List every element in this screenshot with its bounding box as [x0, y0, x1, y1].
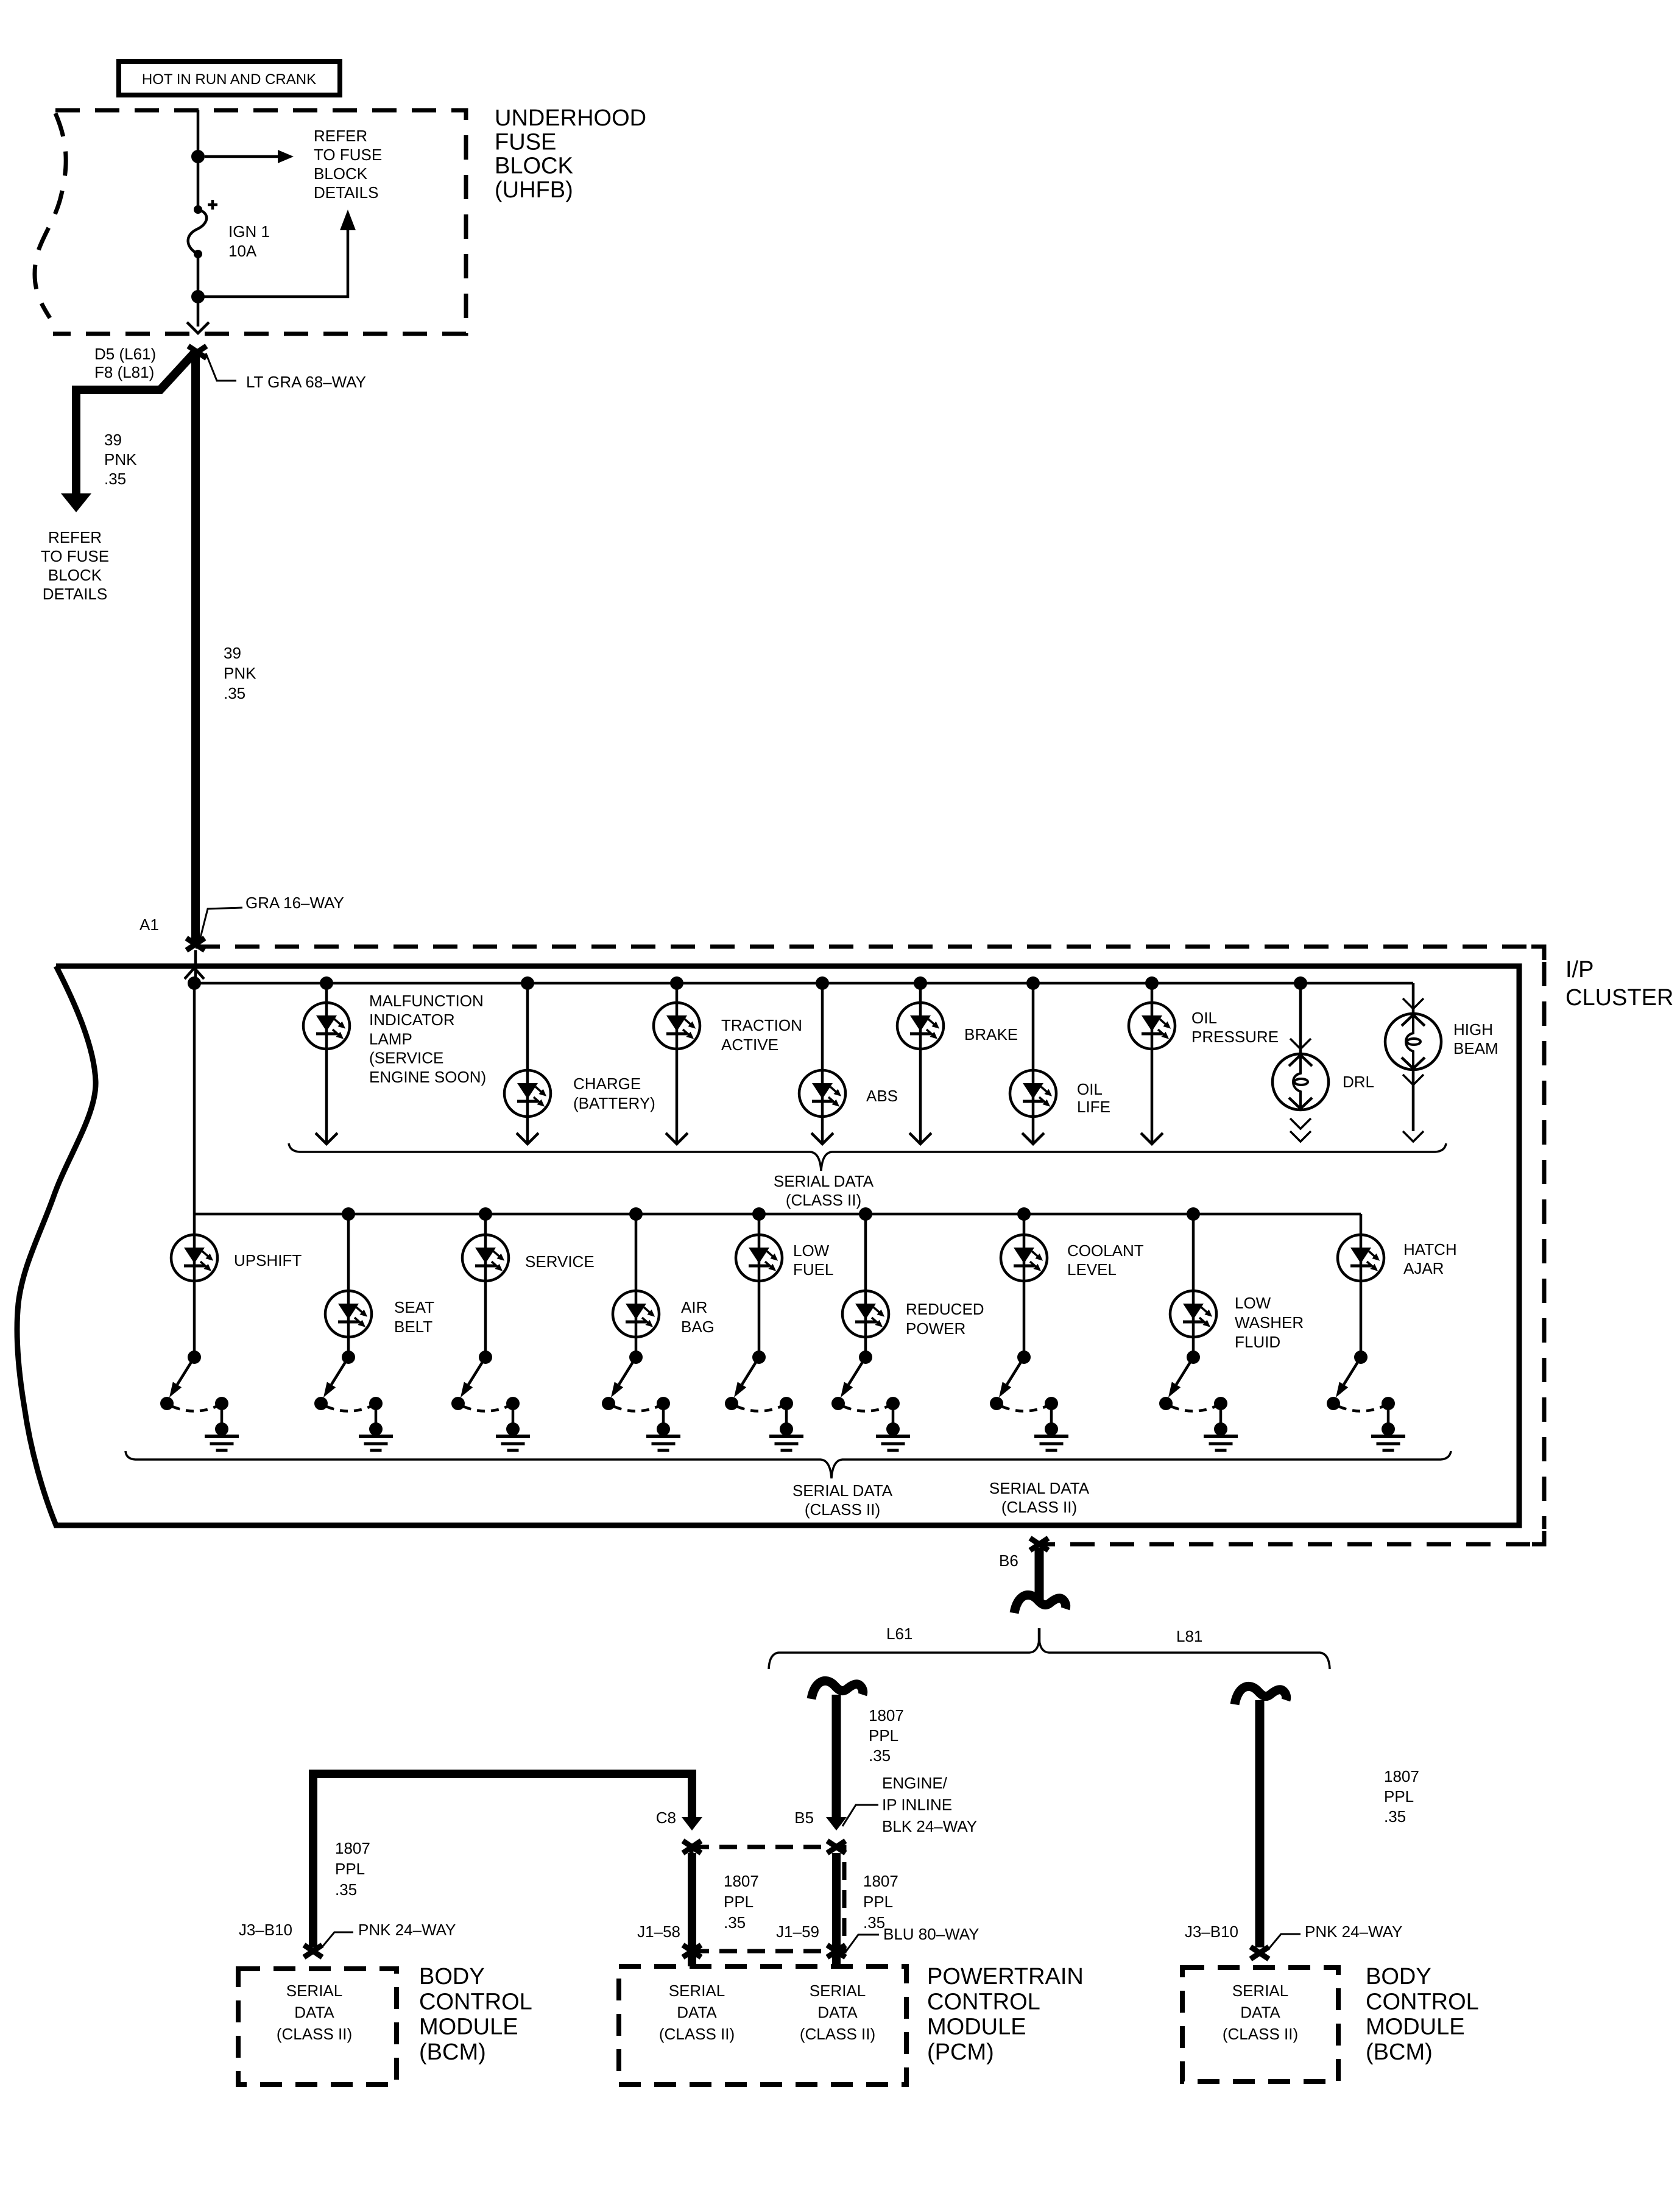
svg-text:DATA: DATA [1240, 2003, 1280, 2022]
svg-text:1807: 1807 [863, 1872, 898, 1890]
svg-text:CHARGE: CHARGE [573, 1075, 641, 1093]
svg-text:39: 39 [224, 644, 241, 662]
svg-text:I/P: I/P [1565, 957, 1594, 983]
svg-text:SERVICE: SERVICE [525, 1252, 595, 1271]
svg-text:CONTROL: CONTROL [927, 1989, 1040, 2014]
svg-text:.35: .35 [224, 684, 245, 702]
svg-text:BLOCK: BLOCK [495, 154, 573, 179]
svg-text:PNK: PNK [104, 450, 137, 468]
svg-text:BODY: BODY [419, 1964, 485, 1989]
svg-text:A1: A1 [139, 916, 159, 934]
svg-text:C8: C8 [656, 1809, 676, 1827]
svg-text:LOW: LOW [793, 1241, 830, 1260]
svg-text:B6: B6 [999, 1552, 1018, 1570]
svg-text:DETAILS: DETAILS [43, 585, 107, 603]
svg-text:UPSHIFT: UPSHIFT [234, 1251, 302, 1269]
svg-text:.35: .35 [1384, 1807, 1406, 1826]
svg-text:IP INLINE: IP INLINE [882, 1796, 952, 1814]
svg-text:AJAR: AJAR [1403, 1259, 1444, 1277]
svg-text:FUEL: FUEL [793, 1260, 833, 1279]
svg-text:(CLASS II): (CLASS II) [1001, 1498, 1077, 1516]
svg-text:BLOCK: BLOCK [314, 164, 368, 183]
svg-text:INDICATOR: INDICATOR [369, 1011, 455, 1029]
svg-text:BLK 24–WAY: BLK 24–WAY [882, 1817, 977, 1835]
svg-text:MALFUNCTION: MALFUNCTION [369, 992, 484, 1010]
svg-text:PPL: PPL [1384, 1787, 1414, 1806]
svg-text:UNDERHOOD: UNDERHOOD [495, 105, 646, 131]
svg-text:TRACTION: TRACTION [721, 1016, 802, 1034]
svg-text:BELT: BELT [394, 1318, 432, 1336]
svg-text:L81: L81 [1176, 1627, 1202, 1645]
svg-text:PNK: PNK [224, 664, 256, 682]
svg-text:LAMP: LAMP [369, 1029, 412, 1048]
svg-text:SERIAL DATA: SERIAL DATA [792, 1481, 893, 1500]
svg-text:SERIAL: SERIAL [286, 1982, 343, 2000]
svg-text:MODULE: MODULE [419, 2014, 518, 2040]
svg-text:(SERVICE: (SERVICE [369, 1049, 443, 1067]
svg-text:1807: 1807 [1384, 1767, 1419, 1785]
svg-text:(UHFB): (UHFB) [495, 177, 573, 203]
svg-text:CLUSTER: CLUSTER [1565, 985, 1673, 1011]
svg-text:SEAT: SEAT [394, 1298, 434, 1316]
svg-text:PNK 24–WAY: PNK 24–WAY [1305, 1922, 1402, 1941]
svg-text:MODULE: MODULE [927, 2014, 1026, 2040]
svg-text:WASHER: WASHER [1235, 1313, 1304, 1332]
svg-text:SERIAL: SERIAL [810, 1982, 866, 2000]
svg-text:BRAKE: BRAKE [964, 1025, 1018, 1043]
svg-text:CONTROL: CONTROL [419, 1989, 532, 2014]
svg-text:DATA: DATA [817, 2003, 858, 2022]
svg-text:GRA 16–WAY: GRA 16–WAY [245, 894, 344, 912]
svg-text:ACTIVE: ACTIVE [721, 1036, 778, 1054]
svg-text:.35: .35 [869, 1746, 891, 1765]
svg-text:J3–B10: J3–B10 [239, 1921, 292, 1939]
svg-text:TO FUSE: TO FUSE [41, 547, 109, 565]
svg-text:(CLASS II): (CLASS II) [277, 2025, 352, 2043]
svg-text:BAG: BAG [681, 1318, 715, 1336]
svg-text:DATA: DATA [294, 2003, 334, 2022]
svg-text:PNK 24–WAY: PNK 24–WAY [358, 1921, 456, 1939]
svg-text:(CLASS II): (CLASS II) [659, 2025, 735, 2043]
svg-text:DETAILS: DETAILS [314, 183, 378, 202]
svg-text:F8 (L81): F8 (L81) [94, 363, 154, 381]
svg-text:D5 (L61): D5 (L61) [94, 345, 156, 363]
svg-text:LEVEL: LEVEL [1067, 1260, 1117, 1279]
svg-text:ABS: ABS [866, 1087, 898, 1105]
svg-text:PRESSURE: PRESSURE [1191, 1028, 1279, 1046]
svg-text:BLOCK: BLOCK [48, 566, 102, 584]
svg-text:LOW: LOW [1235, 1294, 1271, 1312]
svg-text:SERIAL DATA: SERIAL DATA [774, 1172, 874, 1190]
svg-text:PPL: PPL [863, 1893, 893, 1911]
svg-text:J1–59: J1–59 [776, 1922, 819, 1941]
svg-text:10A: 10A [228, 242, 257, 260]
svg-text:LIFE: LIFE [1077, 1098, 1110, 1116]
svg-text:CONTROL: CONTROL [1366, 1989, 1479, 2014]
svg-text:DRL: DRL [1343, 1073, 1374, 1091]
svg-text:REDUCED: REDUCED [906, 1300, 984, 1318]
svg-text:1807: 1807 [724, 1872, 759, 1890]
svg-text:COOLANT: COOLANT [1067, 1241, 1144, 1260]
svg-text:(CLASS II): (CLASS II) [1223, 2025, 1298, 2043]
svg-text:1807: 1807 [869, 1706, 904, 1725]
svg-text:BODY: BODY [1366, 1964, 1431, 1989]
svg-text:LT GRA 68–WAY: LT GRA 68–WAY [246, 373, 366, 391]
svg-text:BEAM: BEAM [1453, 1039, 1498, 1057]
svg-text:L61: L61 [886, 1625, 912, 1643]
svg-text:ENGINE/: ENGINE/ [882, 1774, 948, 1792]
svg-text:SERIAL: SERIAL [669, 1982, 725, 2000]
svg-text:POWERTRAIN: POWERTRAIN [927, 1964, 1084, 1989]
svg-text:(CLASS II): (CLASS II) [786, 1191, 861, 1209]
svg-text:TO FUSE: TO FUSE [314, 146, 382, 164]
svg-text:FLUID: FLUID [1235, 1333, 1280, 1351]
svg-text:SERIAL: SERIAL [1232, 1982, 1289, 2000]
svg-text:.35: .35 [335, 1880, 357, 1899]
svg-text:SERIAL DATA: SERIAL DATA [989, 1479, 1090, 1497]
svg-text:.35: .35 [863, 1913, 885, 1932]
svg-text:HOT IN RUN AND CRANK: HOT IN RUN AND CRANK [142, 71, 316, 88]
svg-text:.35: .35 [104, 470, 126, 488]
svg-text:MODULE: MODULE [1366, 2014, 1465, 2040]
svg-text:OIL: OIL [1077, 1080, 1103, 1098]
svg-text:AIR: AIR [681, 1298, 707, 1316]
svg-text:HATCH: HATCH [1403, 1240, 1457, 1259]
svg-text:B5: B5 [794, 1809, 814, 1827]
svg-text:REFER: REFER [48, 528, 102, 546]
svg-text:.35: .35 [724, 1913, 746, 1932]
svg-text:PPL: PPL [724, 1893, 754, 1911]
svg-text:FUSE: FUSE [495, 129, 556, 155]
svg-text:(BATTERY): (BATTERY) [573, 1094, 655, 1112]
svg-text:IGN 1: IGN 1 [228, 222, 270, 241]
svg-text:BLU 80–WAY: BLU 80–WAY [883, 1925, 979, 1943]
svg-text:(CLASS II): (CLASS II) [800, 2025, 875, 2043]
svg-text:J1–58: J1–58 [637, 1922, 680, 1941]
svg-text:(PCM): (PCM) [927, 2039, 994, 2065]
svg-text:HIGH: HIGH [1453, 1020, 1493, 1039]
svg-text:OIL: OIL [1191, 1009, 1217, 1027]
svg-text:1807: 1807 [335, 1839, 370, 1857]
svg-text:PPL: PPL [335, 1860, 365, 1878]
svg-text:J3–B10: J3–B10 [1185, 1922, 1238, 1941]
svg-text:(BCM): (BCM) [419, 2039, 486, 2065]
svg-text:POWER: POWER [906, 1319, 965, 1338]
svg-text:ENGINE SOON): ENGINE SOON) [369, 1068, 486, 1086]
svg-text:REFER: REFER [314, 127, 367, 145]
svg-text:(CLASS II): (CLASS II) [805, 1500, 880, 1519]
svg-text:(BCM): (BCM) [1366, 2039, 1433, 2065]
svg-text:PPL: PPL [869, 1726, 898, 1745]
svg-text:39: 39 [104, 431, 122, 449]
svg-text:DATA: DATA [677, 2003, 717, 2022]
